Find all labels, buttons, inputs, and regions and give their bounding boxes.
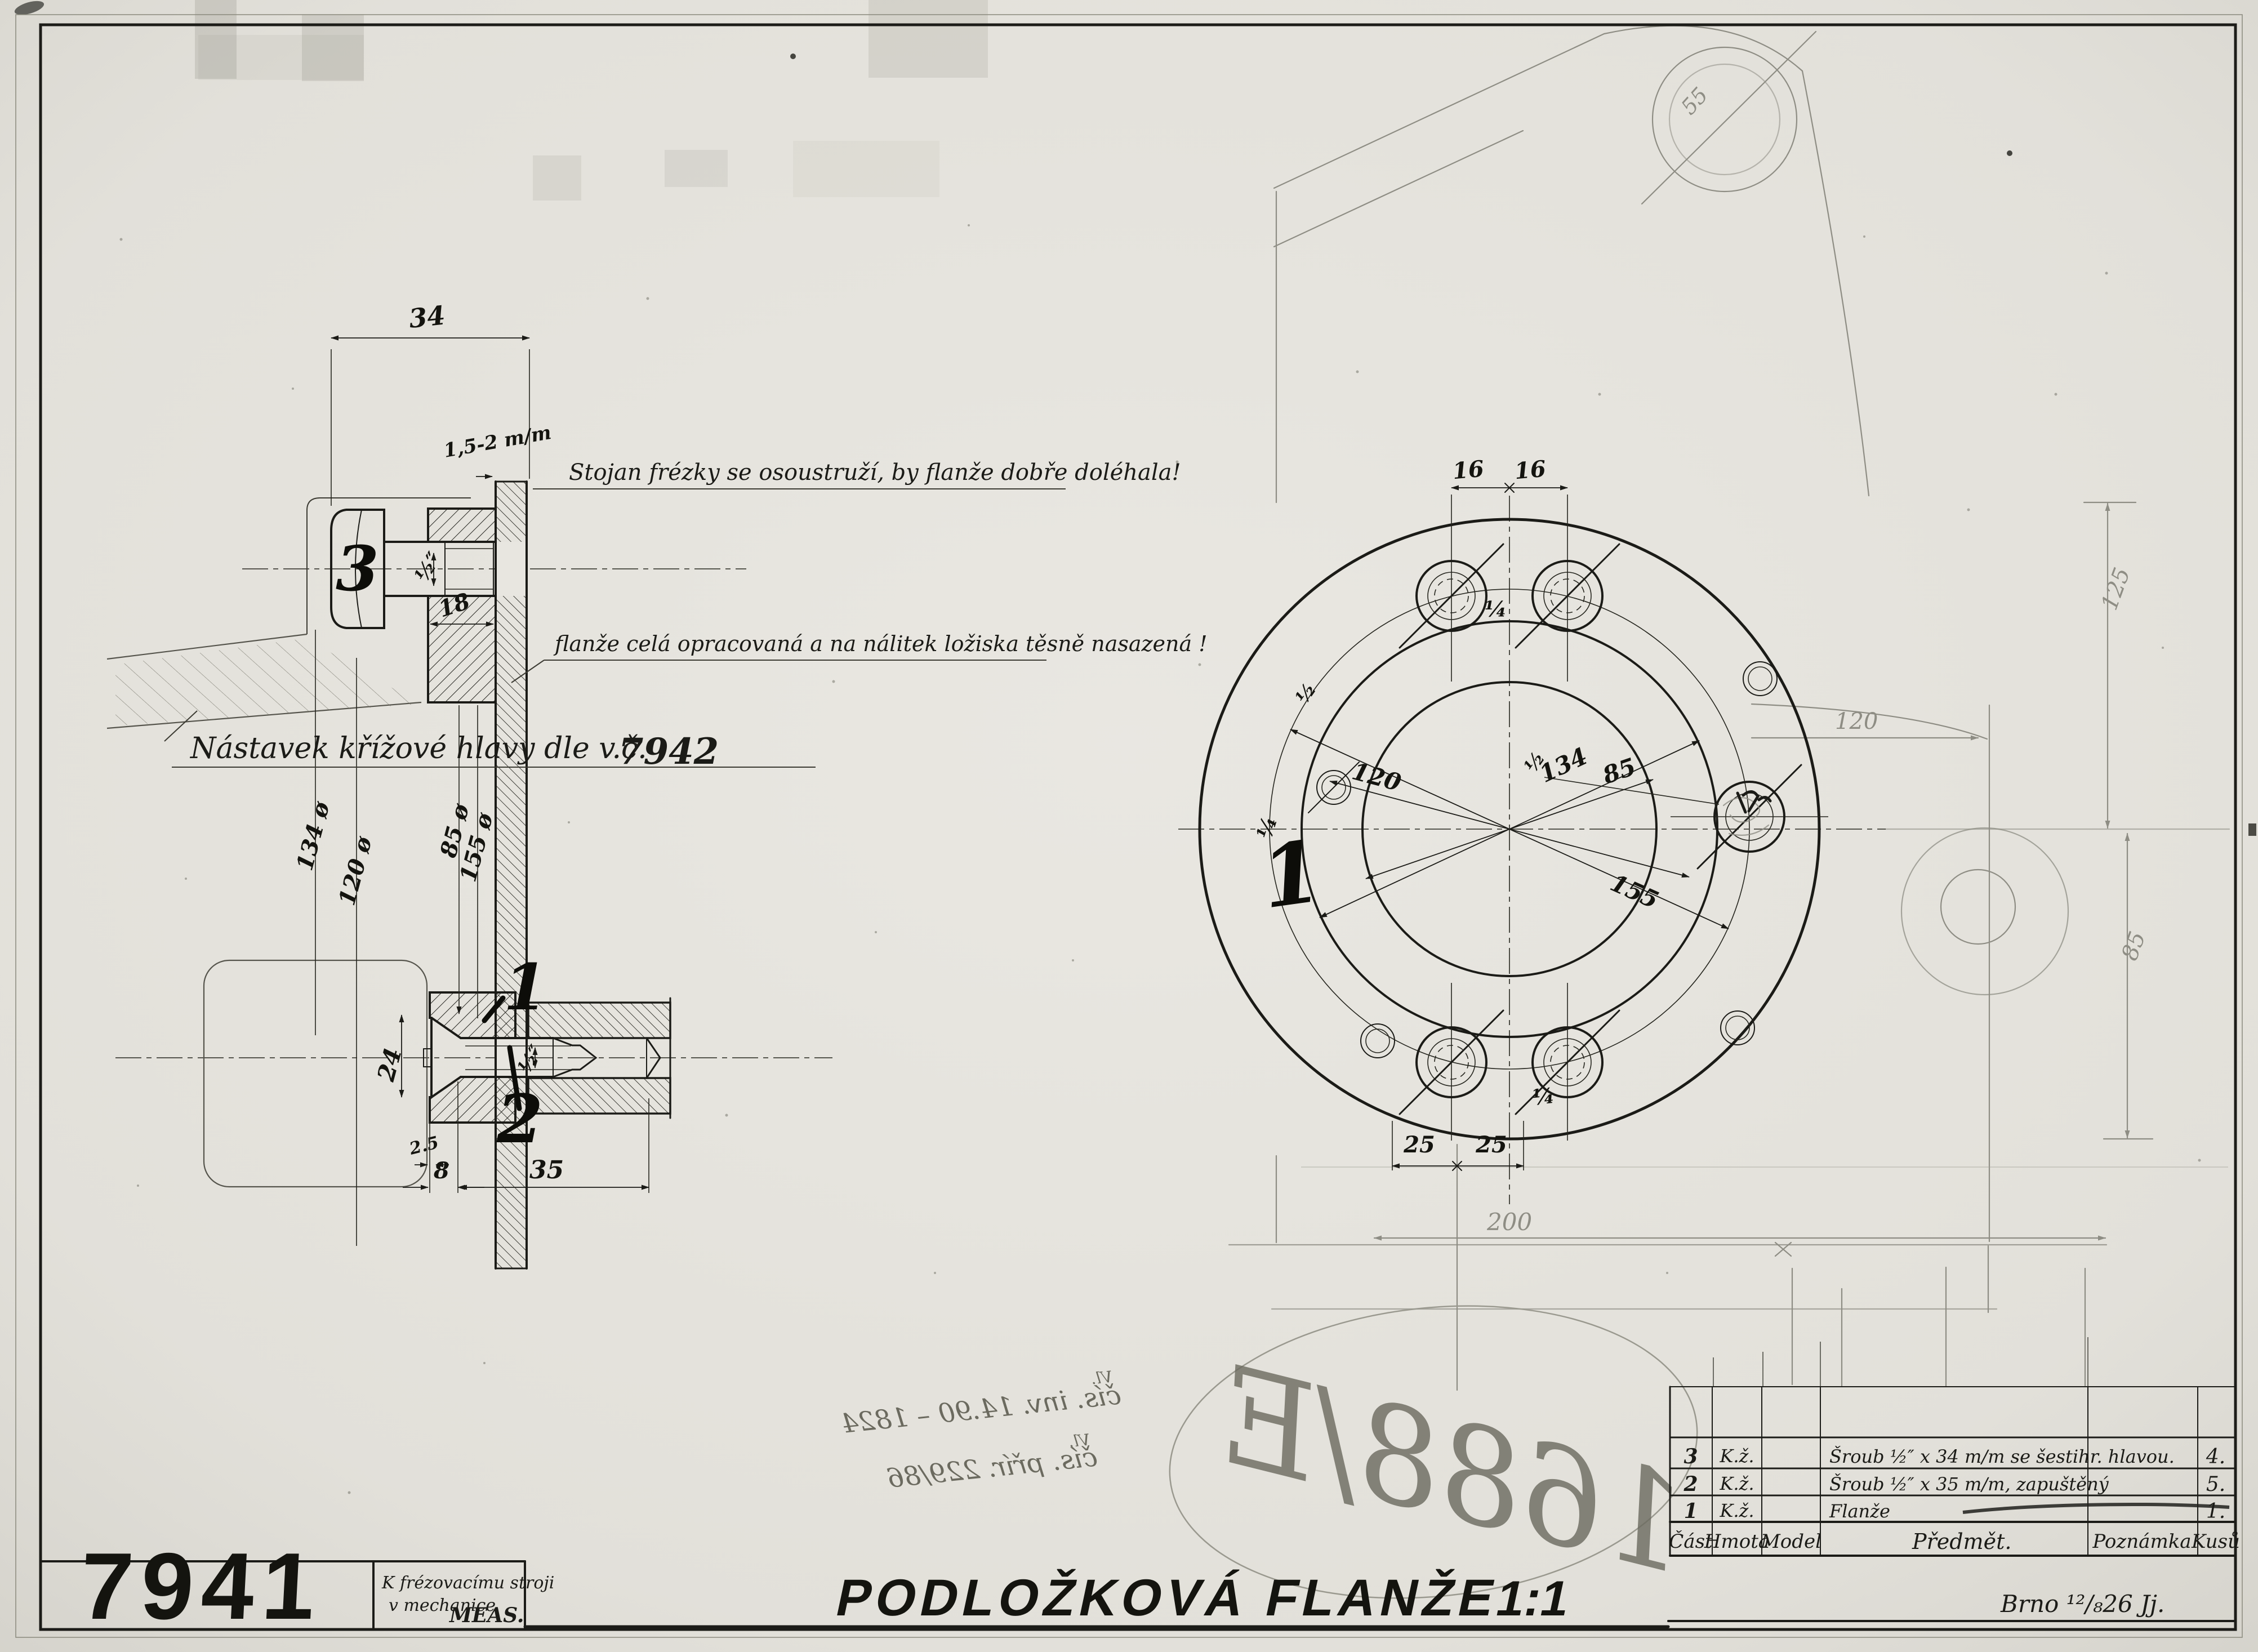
dim-34: 34	[408, 300, 447, 334]
tape-patch	[869, 0, 988, 78]
part-label-1: 1	[504, 951, 547, 1025]
dim-16-left: 16	[1451, 456, 1485, 485]
tape-patch	[198, 35, 364, 80]
cell-qty: 1.	[2206, 1500, 2225, 1523]
part-label-2: 2	[496, 1080, 543, 1158]
table-header-row: Část Hmota Model Předmět. Poznámka Kusů	[1669, 1529, 2240, 1554]
dim-quarter-top: ¼	[1485, 596, 1507, 622]
header-material: Hmota	[1704, 1530, 1770, 1553]
tape-patch	[533, 155, 581, 201]
place-and-date: Brno ¹²/₈26 Jj.	[2000, 1590, 2165, 1618]
machine-note-org: MEAS.	[448, 1604, 524, 1627]
boss-section-upper	[528, 1003, 670, 1038]
drawing-title: PODLOŽKOVÁ FLANŽE	[831, 1569, 1504, 1627]
drawing-scale: 1:1	[1491, 1570, 1575, 1626]
machine-note-line1: K frézovacímu stroji	[381, 1573, 554, 1593]
dim-quarter-bottom: ¼	[1531, 1083, 1556, 1110]
header-note: Poznámka	[2092, 1530, 2191, 1553]
dim-35: 35	[529, 1156, 564, 1185]
cell-subject: Šroub ½″ x 35 m/m, zapuštěný	[1829, 1473, 2109, 1495]
cell-part: 1	[1684, 1499, 1698, 1523]
flange-section-upper	[428, 509, 496, 542]
cell-material: K.ž.	[1719, 1473, 1754, 1494]
pencil-dim-120: 120	[1835, 709, 1878, 734]
cell-qty: 5.	[2206, 1473, 2225, 1496]
drawing-number: 7941	[78, 1533, 326, 1639]
stamp-acquisition-prefix: Vl.	[1067, 1430, 1090, 1451]
note-crosshead: Nástavek křížové hlavy dle v.č.	[189, 732, 647, 765]
part-label-3: 3	[336, 532, 379, 605]
drawing-canvas: 55 120 125 85 200 1688/E	[0, 0, 2258, 1652]
tape-patch	[793, 141, 939, 197]
dim-16-right: 16	[1513, 456, 1547, 485]
cell-subject: Šroub ½″ x 34 m/m se šestihr. hlavou.	[1829, 1446, 2175, 1467]
dim-8: 8	[433, 1157, 449, 1184]
note-stand: Stojan frézky se osoustruží, by flanže d…	[569, 460, 1181, 486]
dim-25-left: 25	[1403, 1132, 1435, 1158]
dim-25-right: 25	[1475, 1132, 1507, 1158]
pencil-dim-200: 200	[1486, 1208, 1532, 1236]
stamp-inventory-prefix: Vl.	[1090, 1368, 1113, 1388]
ink-dot	[790, 54, 796, 59]
cell-part: 2	[1683, 1472, 1698, 1496]
edge-mark	[2248, 823, 2256, 836]
tape-patch	[665, 150, 728, 187]
header-subject: Předmět.	[1912, 1529, 2011, 1554]
wall-bolt-hole	[495, 542, 528, 596]
cell-subject: Flanže	[1829, 1500, 1890, 1522]
header-model: Model	[1760, 1530, 1821, 1553]
cell-part: 3	[1684, 1445, 1698, 1468]
cell-material: K.ž.	[1719, 1500, 1754, 1521]
note-crosshead-ref: 7942	[618, 731, 719, 773]
cell-material: K.ž.	[1719, 1445, 1754, 1467]
note-flange: flanže celá opracovaná a na nálitek loži…	[553, 631, 1208, 656]
scanned-technical-drawing: 55 120 125 85 200 1688/E	[0, 0, 2258, 1652]
header-qty: Kusů	[2191, 1530, 2240, 1553]
paper-artifacts	[0, 0, 2258, 1652]
ink-dot	[2007, 150, 2012, 156]
cell-qty: 4.	[2206, 1445, 2225, 1468]
